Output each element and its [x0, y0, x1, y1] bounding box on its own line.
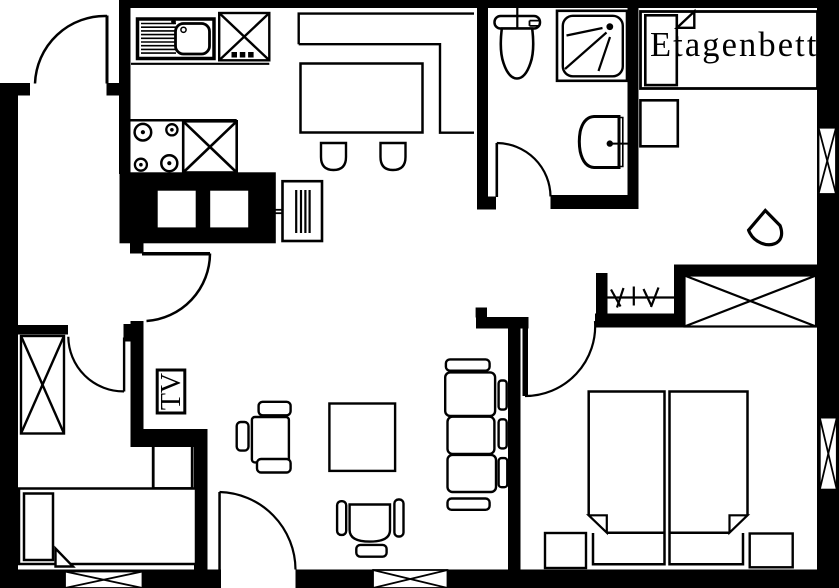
svg-text:TV: TV — [156, 373, 187, 410]
svg-text:Etagenbett: Etagenbett — [650, 26, 819, 64]
